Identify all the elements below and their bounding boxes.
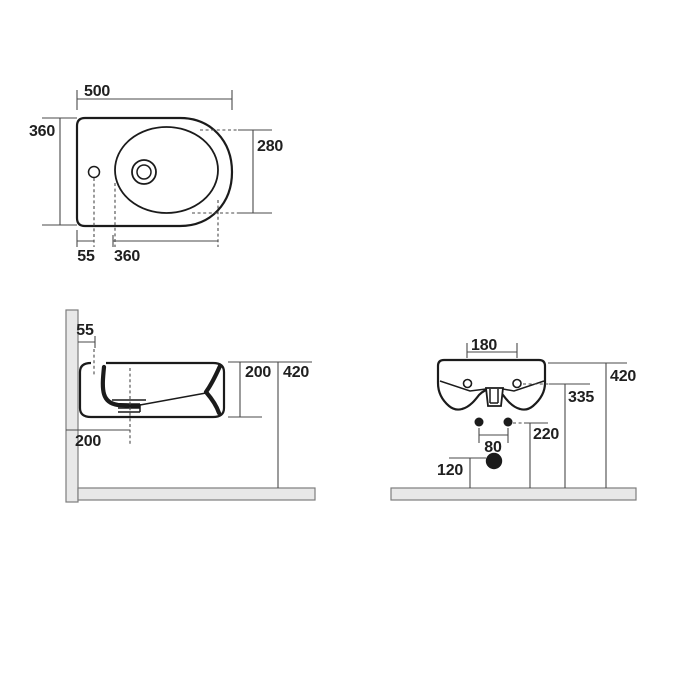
side-body-depth-label: 200	[245, 364, 271, 381]
plan-basin-depth-label: 280	[257, 138, 283, 155]
rear-view: 180 420 335 220 80 120	[391, 337, 636, 500]
rear-bolt-height-label: 220	[533, 426, 559, 443]
plan-view: 500 360 280 55 360	[29, 83, 283, 265]
floor-slab-left	[78, 488, 315, 500]
side-tap-offset-label: 55	[76, 322, 94, 339]
plan-bottom-dim-lines	[77, 230, 218, 247]
rear-rim-height-label: 420	[610, 368, 636, 385]
rear-drain-height-label: 120	[437, 462, 463, 479]
floor-slab-right	[391, 488, 636, 500]
rear-fixing-bolt-left	[475, 418, 484, 427]
plan-basin-length-label: 360	[114, 248, 140, 265]
side-rim-height-label: 420	[283, 364, 309, 381]
plan-width-label: 500	[84, 83, 110, 100]
rear-hole-spacing-label: 180	[471, 337, 497, 354]
side-view: 55 200 420 200	[66, 310, 315, 502]
rear-mount-height-label: 335	[568, 389, 594, 406]
plan-depth-label: 360	[29, 123, 55, 140]
rear-bolt-spacing-label: 80	[484, 439, 502, 456]
technical-drawing-canvas: 500 360 280 55 360	[0, 0, 700, 700]
side-drain-offset-label: 200	[75, 433, 101, 450]
plan-tap-offset-label: 55	[77, 248, 95, 265]
rear-mounting-hole-left	[464, 380, 472, 388]
rear-mounting-hole-right	[513, 380, 521, 388]
bidet-dimension-drawing: 500 360 280 55 360	[0, 0, 700, 700]
rear-fixing-bolt-right	[504, 418, 513, 427]
